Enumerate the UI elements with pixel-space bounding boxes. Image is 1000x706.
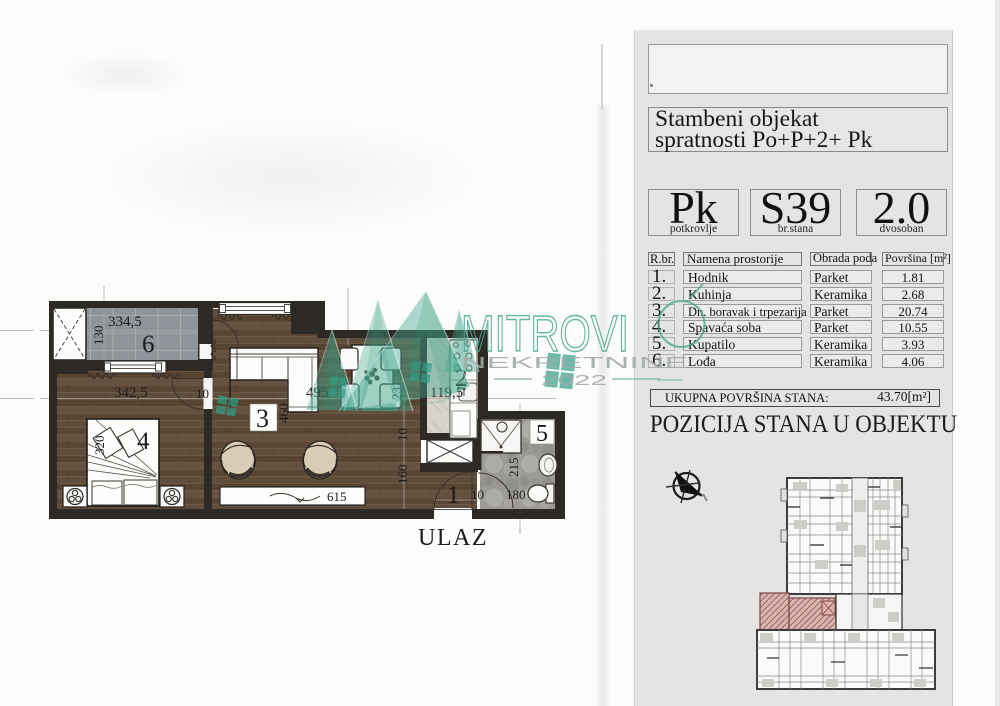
svg-text:130: 130 [91,326,106,346]
svg-text:MITROVI: MITROVI [461,305,629,362]
svg-text:342,5: 342,5 [114,385,148,401]
svg-text:2022: 2022 [541,372,607,389]
svg-text:615: 615 [327,489,347,504]
svg-text:10: 10 [196,386,209,401]
svg-text:320: 320 [92,436,107,456]
svg-text:4: 4 [137,428,150,455]
svg-text:1: 1 [447,482,460,509]
svg-text:10: 10 [471,487,484,502]
svg-text:180: 180 [506,487,526,502]
svg-text:460: 460 [276,404,291,424]
svg-text:334,5: 334,5 [108,314,142,330]
svg-text:6: 6 [142,331,155,358]
svg-text:5: 5 [536,421,548,447]
svg-text:160: 160 [395,465,410,485]
svg-text:ULAZ: ULAZ [418,525,488,551]
svg-text:NEKRETNINE: NEKRETNINE [461,355,688,372]
svg-text:215: 215 [506,458,521,478]
svg-text:3: 3 [256,404,269,433]
svg-text:10: 10 [395,428,410,441]
